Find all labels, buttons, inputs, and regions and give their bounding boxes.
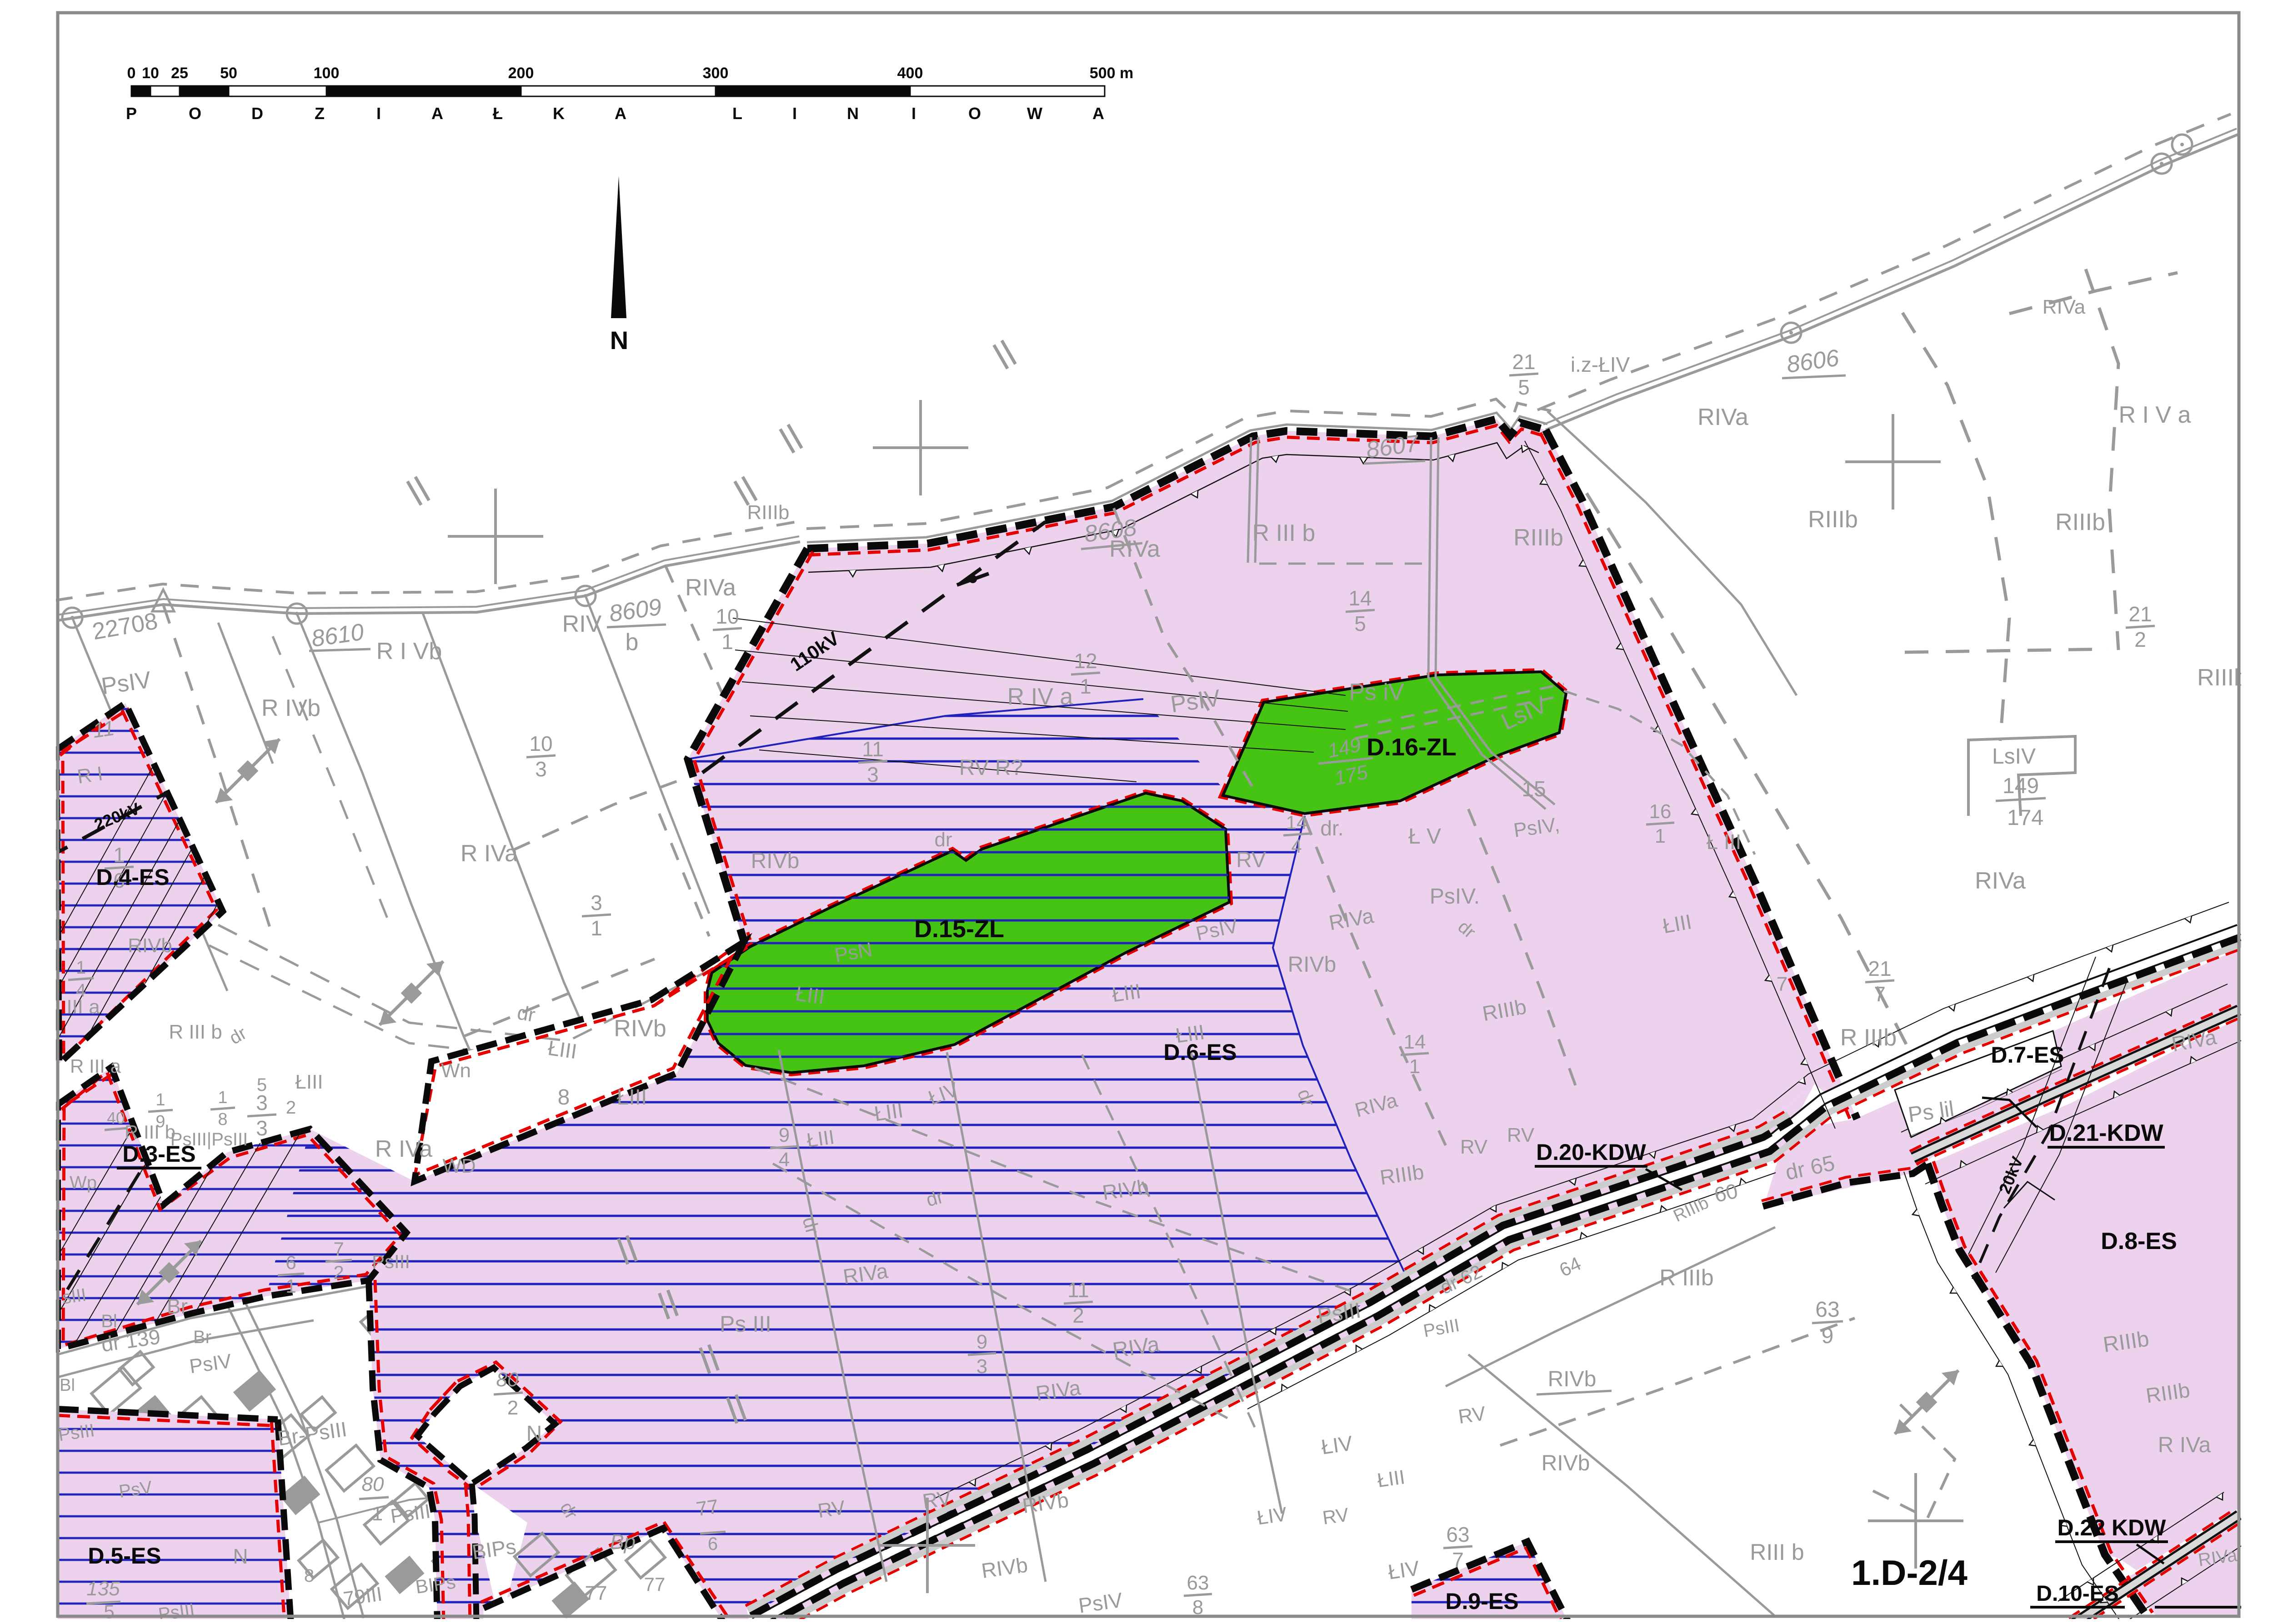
svg-text:8: 8 (304, 1566, 314, 1586)
svg-text:RIV: RIV (562, 611, 602, 637)
svg-text:ŁIV: ŁIV (1320, 1431, 1354, 1459)
svg-text:PsIV.: PsIV. (1430, 884, 1480, 909)
svg-text:60: 60 (1712, 1179, 1740, 1207)
svg-text:80: 80 (496, 1369, 519, 1391)
svg-text:I: I (792, 104, 797, 123)
svg-text:77: 77 (585, 1582, 607, 1604)
svg-text:D.10-ES: D.10-ES (2036, 1582, 2118, 1606)
svg-text:N: N (610, 326, 628, 355)
svg-text:8: 8 (558, 1085, 570, 1109)
svg-text:3: 3 (535, 757, 547, 781)
svg-text:O: O (968, 104, 981, 123)
svg-text:P: P (126, 104, 137, 123)
svg-text:4: 4 (779, 1149, 790, 1171)
svg-text:RV: RV (1457, 1402, 1487, 1428)
svg-text:Wp: Wp (70, 1173, 97, 1193)
svg-text:1: 1 (113, 843, 125, 867)
svg-text:ŁIII: ŁIII (872, 1098, 905, 1125)
svg-text:D.6-ES: D.6-ES (1163, 1039, 1237, 1065)
svg-text:RIIIb: RIIIb (1513, 525, 1563, 551)
svg-text:ŁIII: ŁIII (617, 1085, 647, 1109)
svg-text:ŁIII: ŁIII (794, 981, 826, 1009)
svg-text:R IIIb: R IIIb (1659, 1265, 1713, 1290)
svg-text:135: 135 (86, 1578, 120, 1600)
svg-text:14: 14 (1348, 586, 1372, 610)
svg-text:2: 2 (333, 1262, 344, 1283)
svg-text:D.3-ES: D.3-ES (122, 1141, 195, 1167)
svg-text:7: 7 (333, 1238, 344, 1259)
svg-text:5: 5 (257, 1075, 267, 1095)
svg-text:1: 1 (155, 1090, 165, 1109)
svg-text:0: 0 (127, 65, 136, 82)
svg-text:Ps III: Ps III (720, 1311, 771, 1337)
svg-text:80: 80 (362, 1473, 384, 1495)
svg-text:D.20-KDW: D.20-KDW (1536, 1139, 1646, 1165)
svg-text:5: 5 (1518, 375, 1530, 399)
svg-text:63: 63 (1446, 1523, 1469, 1546)
svg-text:D.4-ES: D.4-ES (96, 864, 169, 890)
svg-text:R IV a: R IV a (1007, 684, 1073, 710)
svg-text:2: 2 (286, 1098, 296, 1118)
svg-text:N: N (233, 1544, 248, 1568)
svg-text:1: 1 (76, 958, 86, 978)
svg-text:Bp: Bp (610, 1530, 636, 1554)
svg-text:R IIIb: R IIIb (1840, 1024, 1897, 1051)
svg-text:7: 7 (1777, 973, 1787, 995)
svg-text:5: 5 (1354, 612, 1366, 635)
svg-text:9: 9 (779, 1124, 790, 1146)
svg-text:R III b: R III b (125, 1121, 175, 1143)
svg-text:1: 1 (285, 1275, 296, 1297)
svg-text:D: D (251, 104, 263, 123)
svg-text:RIVb: RIVb (1288, 953, 1337, 977)
svg-text:ŁIV: ŁIV (1256, 1503, 1289, 1529)
svg-text:RIVa: RIVa (685, 575, 736, 601)
svg-text:Ps iV: Ps iV (1349, 679, 1404, 705)
svg-text:12: 12 (1074, 649, 1097, 673)
svg-text:63: 63 (1815, 1298, 1839, 1322)
svg-text:ŁIV: ŁIV (1387, 1556, 1421, 1584)
svg-text:7: 7 (1452, 1548, 1464, 1572)
svg-text:63: 63 (1187, 1572, 1209, 1594)
svg-text:1: 1 (721, 630, 733, 654)
svg-text:21: 21 (2128, 602, 2152, 626)
svg-text:Br: Br (193, 1327, 211, 1347)
svg-text:WD: WD (442, 1155, 476, 1177)
svg-text:RIVb: RIVb (128, 934, 172, 957)
svg-text:14: 14 (1286, 812, 1307, 833)
svg-text:1: 1 (1080, 675, 1091, 698)
svg-text:N: N (847, 104, 859, 123)
svg-text:3: 3 (591, 891, 602, 914)
svg-text:2: 2 (507, 1397, 518, 1419)
svg-text:RIIIb: RIIIb (2055, 509, 2105, 535)
svg-text:N: N (526, 1422, 542, 1446)
svg-text:21: 21 (1512, 350, 1535, 374)
svg-text:21: 21 (1868, 957, 1891, 980)
svg-text:dr.: dr. (1320, 816, 1343, 840)
svg-text:D.16-ZL: D.16-ZL (1367, 734, 1457, 761)
svg-text:77: 77 (644, 1574, 666, 1595)
svg-text:1.D-2/4: 1.D-2/4 (1851, 1553, 1968, 1593)
svg-text:77: 77 (695, 1495, 720, 1520)
svg-text:III a: III a (66, 996, 100, 1018)
svg-text:A: A (431, 104, 443, 123)
svg-text:11: 11 (91, 716, 116, 742)
svg-text:A: A (1092, 104, 1104, 123)
svg-text:Br: Br (167, 1294, 188, 1318)
svg-text:200: 200 (508, 65, 534, 82)
svg-text:7: 7 (1874, 982, 1886, 1006)
svg-text:1: 1 (591, 916, 602, 940)
svg-text:R I V a: R I V a (2119, 402, 2191, 428)
svg-text:R IVb: R IVb (261, 695, 320, 721)
svg-text:RIIIb: RIIIb (1808, 506, 1858, 533)
svg-text:ŁIII: ŁIII (1110, 979, 1142, 1006)
svg-text:6: 6 (285, 1252, 296, 1273)
svg-text:RIIIb: RIIIb (747, 501, 790, 524)
svg-text:W: W (1027, 104, 1042, 123)
svg-text:Z: Z (315, 104, 325, 123)
svg-text:PsIII: PsIII (372, 1251, 410, 1272)
svg-text:b: b (626, 629, 639, 655)
svg-text:9: 9 (155, 1112, 165, 1131)
svg-text:K: K (553, 104, 565, 123)
svg-text:2: 2 (2134, 628, 2146, 651)
svg-text:8: 8 (218, 1110, 227, 1129)
svg-text:10: 10 (529, 732, 552, 755)
svg-text:Bl: Bl (60, 1376, 75, 1395)
svg-text:RIVb: RIVb (1542, 1451, 1590, 1475)
svg-text:RIVa: RIVa (2043, 296, 2086, 318)
svg-text:Wn: Wn (441, 1059, 471, 1082)
svg-text:ŁIII: ŁIII (1661, 909, 1693, 938)
svg-text:11: 11 (1067, 1278, 1089, 1302)
svg-text:RV: RV (1236, 848, 1266, 872)
svg-text:RV: RV (921, 1486, 953, 1513)
svg-text:1: 1 (1655, 825, 1666, 847)
svg-text:D.5-ES: D.5-ES (88, 1543, 161, 1569)
svg-text:50: 50 (220, 65, 237, 82)
svg-text:D.15-ZL: D.15-ZL (914, 915, 1004, 943)
svg-text:RIVb: RIVb (751, 849, 800, 873)
svg-text:Bl: Bl (101, 1311, 117, 1331)
svg-text:RIVb: RIVb (614, 1015, 666, 1042)
svg-text:LsIV: LsIV (1992, 745, 2036, 769)
svg-text:RV: RV (1321, 1504, 1350, 1529)
svg-text:RV R?: RV R? (959, 756, 1023, 780)
svg-text:R IVa: R IVa (375, 1136, 432, 1162)
svg-text:ŁIII: ŁIII (805, 1126, 836, 1152)
svg-text:9: 9 (1822, 1324, 1834, 1348)
svg-text:3: 3 (256, 1116, 268, 1140)
svg-text:L: L (732, 104, 742, 123)
svg-text:RIVa: RIVa (1697, 404, 1748, 430)
svg-text:500 m: 500 m (1090, 65, 1133, 82)
svg-text:11: 11 (862, 737, 884, 761)
svg-text:16: 16 (1649, 800, 1672, 823)
svg-text:RV: RV (816, 1496, 847, 1522)
svg-text:R IVa: R IVa (461, 840, 518, 867)
svg-text:10: 10 (716, 605, 739, 628)
svg-text:R IVa: R IVa (2158, 1433, 2211, 1457)
svg-text:300: 300 (703, 65, 729, 82)
svg-text:2: 2 (1072, 1304, 1084, 1327)
svg-text:400: 400 (897, 65, 923, 82)
svg-text:R III a: R III a (70, 1055, 121, 1077)
svg-text:sIII: sIII (61, 1285, 88, 1308)
svg-text:D.22 KDW: D.22 KDW (2058, 1515, 2167, 1540)
svg-text:4: 4 (1291, 835, 1302, 857)
svg-text:dr: dr (516, 1001, 537, 1026)
svg-text:ŁIII: ŁIII (1376, 1466, 1406, 1492)
svg-text:Ł: Ł (493, 104, 503, 123)
svg-text:D.8-ES: D.8-ES (2101, 1228, 2177, 1254)
svg-text:3: 3 (976, 1355, 987, 1378)
svg-text:D.21-KDW: D.21-KDW (2049, 1120, 2163, 1146)
svg-text:100: 100 (314, 65, 340, 82)
svg-text:RIII b: RIII b (1750, 1539, 1804, 1565)
svg-text:40: 40 (107, 1109, 125, 1127)
svg-text:dr: dr (934, 829, 952, 851)
svg-text:RIVa: RIVa (1975, 868, 2026, 894)
svg-text:R III b: R III b (169, 1021, 222, 1043)
svg-text:O: O (189, 104, 201, 123)
svg-text:9: 9 (976, 1331, 987, 1353)
svg-text:174: 174 (2007, 806, 2043, 830)
svg-text:14: 14 (1404, 1031, 1426, 1053)
svg-text:ŁIII: ŁIII (546, 1036, 579, 1063)
svg-text:10: 10 (142, 65, 159, 82)
svg-text:6: 6 (708, 1534, 718, 1554)
svg-text:3: 3 (867, 763, 879, 786)
svg-text:R I Vb: R I Vb (376, 638, 442, 665)
svg-text:R III b: R III b (1252, 520, 1316, 546)
svg-text:D.7-ES: D.7-ES (1991, 1042, 2064, 1068)
svg-text:5: 5 (104, 1601, 114, 1622)
svg-text:RV: RV (1460, 1136, 1488, 1158)
svg-text:15: 15 (1522, 777, 1546, 801)
svg-text:D.9-ES: D.9-ES (1445, 1589, 1518, 1614)
svg-text:I: I (376, 104, 381, 123)
svg-text:I: I (911, 104, 916, 123)
svg-text:A: A (615, 104, 626, 123)
svg-text:Ł III: Ł III (1707, 830, 1742, 854)
svg-text:i.z-ŁIV: i.z-ŁIV (1571, 353, 1630, 376)
svg-text:149: 149 (2003, 774, 2039, 798)
svg-text:1: 1 (372, 1503, 383, 1525)
svg-text:1: 1 (1409, 1055, 1420, 1078)
svg-text:RIVb: RIVb (1548, 1367, 1597, 1391)
svg-text:25: 25 (171, 65, 188, 82)
svg-text:R I: R I (76, 762, 105, 788)
svg-text:RV: RV (1507, 1124, 1535, 1146)
svg-text:Ł V: Ł V (1408, 824, 1441, 849)
svg-text:ŁIII: ŁIII (295, 1071, 323, 1093)
svg-text:1: 1 (218, 1088, 227, 1107)
